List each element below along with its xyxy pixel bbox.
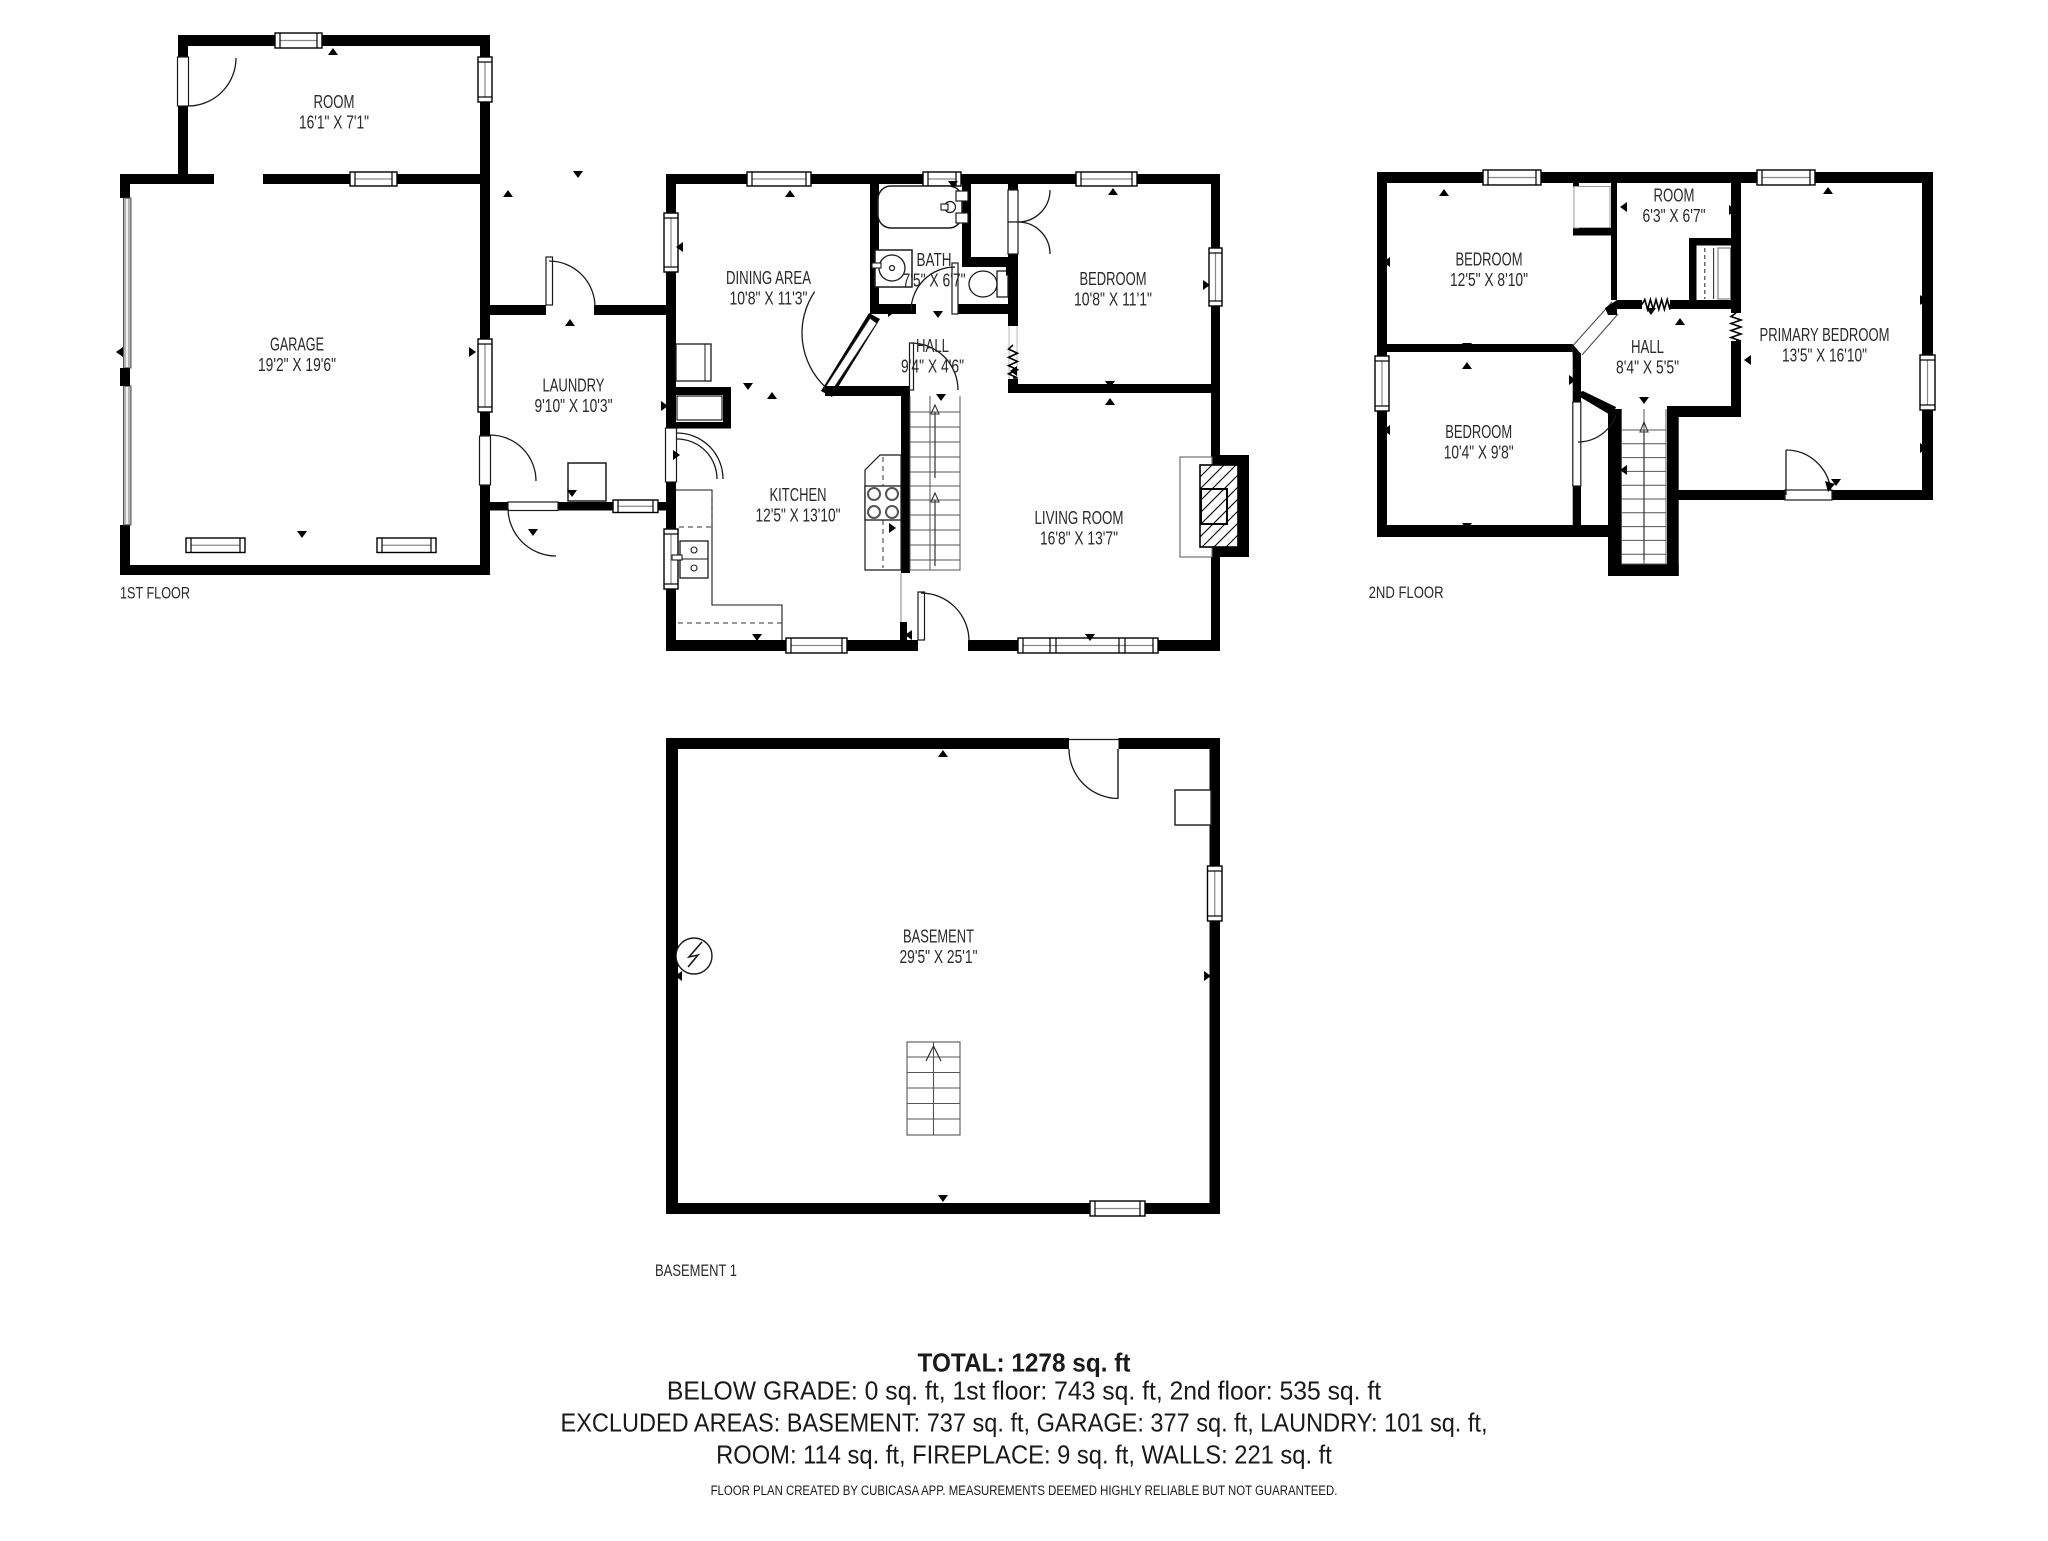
svg-text:ROOM: 114 sq. ft, FIREPLACE: 9: ROOM: 114 sq. ft, FIREPLACE: 9 sq. ft, W… xyxy=(716,1439,1332,1469)
svg-text:DINING AREA: DINING AREA xyxy=(726,268,811,288)
svg-text:10'8" X 11'3": 10'8" X 11'3" xyxy=(730,289,808,309)
svg-text:PRIMARY BEDROOM: PRIMARY BEDROOM xyxy=(1760,325,1890,345)
svg-text:2ND FLOOR: 2ND FLOOR xyxy=(1369,583,1444,602)
svg-text:LIVING ROOM: LIVING ROOM xyxy=(1035,508,1124,528)
svg-text:KITCHEN: KITCHEN xyxy=(770,485,827,505)
svg-text:TOTAL: 1278 sq. ft: TOTAL: 1278 sq. ft xyxy=(918,1348,1131,1378)
svg-text:HALL: HALL xyxy=(916,336,949,356)
svg-text:BASEMENT 1: BASEMENT 1 xyxy=(655,1261,737,1280)
svg-text:BEDROOM: BEDROOM xyxy=(1456,250,1523,270)
svg-text:HALL: HALL xyxy=(1631,337,1664,357)
svg-text:8'4" X 5'5": 8'4" X 5'5" xyxy=(1616,358,1679,378)
svg-text:10'4" X 9'8": 10'4" X 9'8" xyxy=(1444,443,1514,463)
svg-text:BEDROOM: BEDROOM xyxy=(1445,422,1512,442)
svg-text:13'5" X 16'10": 13'5" X 16'10" xyxy=(1782,346,1867,366)
svg-text:10'8" X 11'1": 10'8" X 11'1" xyxy=(1074,290,1152,310)
svg-text:16'1" X 7'1": 16'1" X 7'1" xyxy=(299,113,369,133)
svg-text:16'8" X 13'7": 16'8" X 13'7" xyxy=(1040,529,1118,549)
svg-text:9'10" X 10'3": 9'10" X 10'3" xyxy=(535,396,613,416)
svg-text:7'5" X 6'7": 7'5" X 6'7" xyxy=(903,271,966,291)
svg-text:12'5" X 8'10": 12'5" X 8'10" xyxy=(1450,270,1528,290)
svg-text:19'2" X 19'6": 19'2" X 19'6" xyxy=(258,355,336,375)
svg-text:ROOM: ROOM xyxy=(314,92,355,112)
svg-text:1ST FLOOR: 1ST FLOOR xyxy=(120,584,190,603)
svg-text:29'5" X 25'1": 29'5" X 25'1" xyxy=(900,947,978,967)
svg-text:BEDROOM: BEDROOM xyxy=(1080,269,1147,289)
svg-text:ROOM: ROOM xyxy=(1654,186,1695,206)
svg-text:12'5" X 13'10": 12'5" X 13'10" xyxy=(756,506,841,526)
svg-text:GARAGE: GARAGE xyxy=(270,335,324,355)
svg-text:BATH: BATH xyxy=(917,250,952,270)
svg-text:9'4" X 4'6": 9'4" X 4'6" xyxy=(901,357,964,377)
svg-text:BELOW GRADE: 0 sq. ft, 1st flo: BELOW GRADE: 0 sq. ft, 1st floor: 743 sq… xyxy=(667,1376,1382,1406)
svg-text:6'3" X 6'7": 6'3" X 6'7" xyxy=(1643,206,1706,226)
svg-text:EXCLUDED AREAS: BASEMENT: 737: EXCLUDED AREAS: BASEMENT: 737 sq. ft, GA… xyxy=(561,1408,1488,1438)
svg-text:BASEMENT: BASEMENT xyxy=(903,927,974,947)
svg-text:LAUNDRY: LAUNDRY xyxy=(543,376,605,396)
svg-text:FLOOR PLAN CREATED BY CUBICASA: FLOOR PLAN CREATED BY CUBICASA APP. MEAS… xyxy=(711,1483,1338,1498)
